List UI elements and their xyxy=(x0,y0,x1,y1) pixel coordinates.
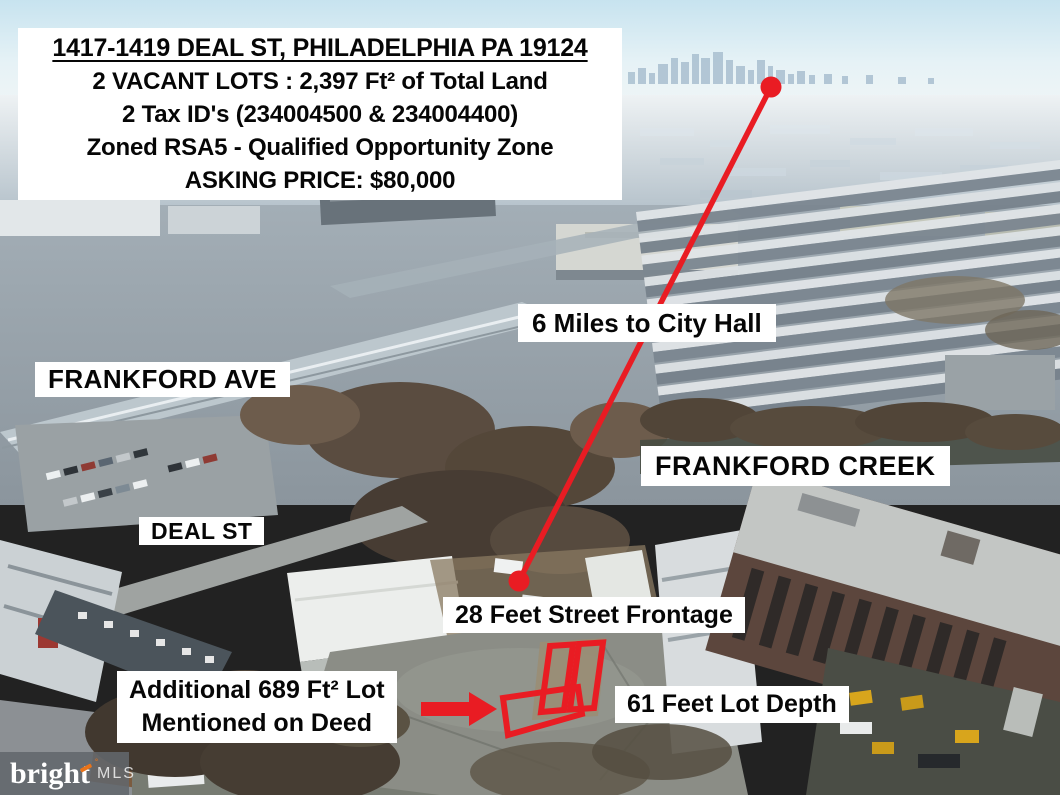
annotated-aerial-listing-photo: 1417-1419 DEAL ST, PHILADELPHIA PA 19124… xyxy=(0,0,1060,795)
listing-lots-line: 2 VACANT LOTS : 2,397 Ft² of Total Land xyxy=(24,65,616,98)
brightmls-brand-text: bright ° xyxy=(10,759,90,789)
label-additional-lot: Additional 689 Ft² Lot Mentioned on Deed xyxy=(117,671,397,743)
listing-price-line: ASKING PRICE: $80,000 xyxy=(24,164,616,197)
property-endpoint-dot xyxy=(509,571,530,592)
listing-info-box: 1417-1419 DEAL ST, PHILADELPHIA PA 19124… xyxy=(18,28,622,200)
brightmls-reg-mark: ° xyxy=(95,758,98,766)
listing-tax-line: 2 Tax ID's (234004500 & 234004400) xyxy=(24,98,616,131)
listing-zoning-line: Zoned RSA5 - Qualified Opportunity Zone xyxy=(24,131,616,164)
label-additional-lot-line1: Additional 689 Ft² Lot xyxy=(129,674,385,707)
listing-address: 1417-1419 DEAL ST, PHILADELPHIA PA 19124 xyxy=(24,32,616,65)
brightmls-watermark: bright ° MLS xyxy=(0,752,129,795)
label-street-frontage: 28 Feet Street Frontage xyxy=(443,597,745,633)
brightmls-wordmark: bright xyxy=(10,757,90,790)
label-frankford-creek: FRANKFORD CREEK xyxy=(641,446,950,486)
label-additional-lot-line2: Mentioned on Deed xyxy=(129,707,385,740)
brightmls-mls-text: MLS xyxy=(97,765,136,783)
label-city-hall-distance: 6 Miles to City Hall xyxy=(518,304,776,342)
label-frankford-ave: FRANKFORD AVE xyxy=(35,362,290,397)
label-lot-depth: 61 Feet Lot Depth xyxy=(615,686,849,723)
lot-outline-right xyxy=(570,643,603,710)
arrow-right-icon xyxy=(421,692,497,726)
skyline-endpoint-dot xyxy=(761,77,782,98)
label-deal-st: DEAL ST xyxy=(139,517,264,545)
